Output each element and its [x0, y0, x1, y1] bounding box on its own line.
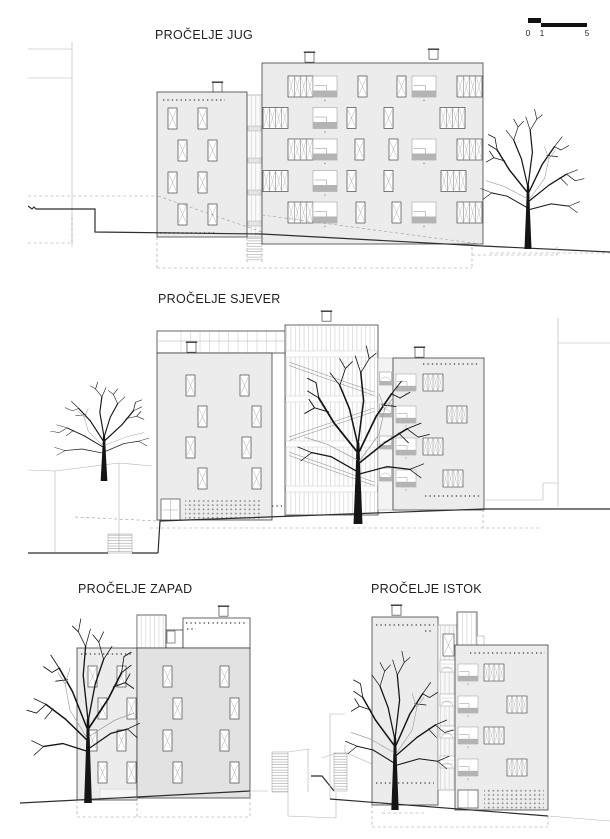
west-roof-structures [137, 606, 250, 648]
east-context-neighbor [330, 714, 372, 800]
east-vent-grille [484, 789, 544, 809]
west-elevation [20, 606, 268, 817]
east-left-block [372, 605, 438, 805]
north-tree-left [50, 382, 149, 481]
south-left-block [157, 82, 247, 237]
north-context-planter [28, 463, 152, 553]
south-context-neighbor [28, 42, 157, 247]
south-tree [481, 109, 584, 249]
site-passage-stairs [272, 749, 336, 818]
north-context-neighbor [484, 318, 610, 507]
south-stair-glazing [247, 95, 262, 262]
elevation-drawings [0, 0, 610, 839]
drawing-sheet: PROČELJE JUG PROČELJE SJEVER PROČELJE ZA… [0, 0, 610, 839]
north-stair-tower [285, 311, 378, 515]
east-elevation [330, 605, 610, 827]
south-main-block [262, 49, 483, 244]
north-elevation [28, 311, 610, 553]
north-balcony-wing [378, 358, 393, 510]
south-elevation [28, 42, 610, 268]
east-right-block [455, 645, 548, 810]
north-vent-grille [185, 500, 262, 520]
west-right-block [137, 648, 250, 798]
north-attic-glazing [157, 331, 290, 353]
east-stair-glazing [438, 625, 457, 790]
east-roof-tower [457, 612, 484, 648]
